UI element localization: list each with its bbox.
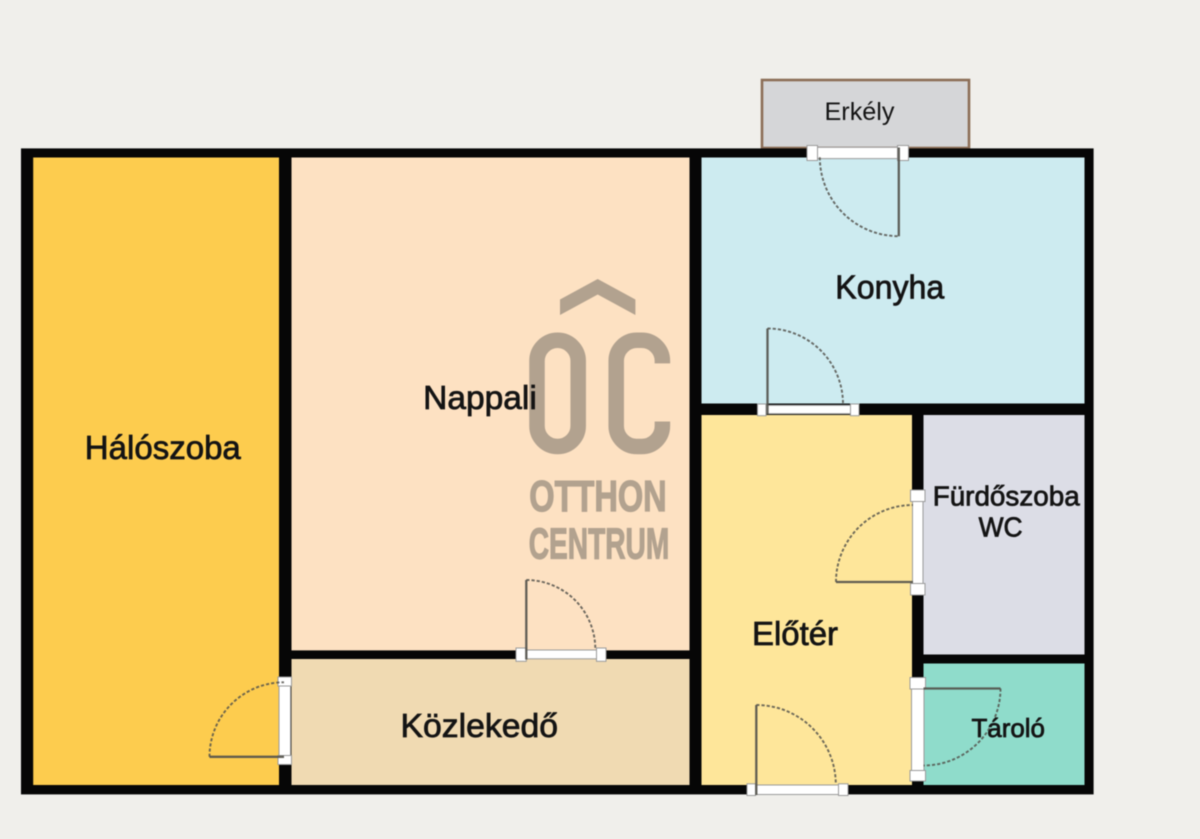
svg-text:Előtér: Előtér bbox=[752, 615, 838, 652]
svg-text:Konyha: Konyha bbox=[835, 269, 945, 306]
svg-text:WC: WC bbox=[979, 511, 1023, 542]
svg-text:CENTRUM: CENTRUM bbox=[529, 521, 670, 569]
svg-text:Közlekedő: Közlekedő bbox=[401, 707, 559, 744]
svg-text:Nappali: Nappali bbox=[423, 379, 537, 416]
svg-text:Fürdőszoba: Fürdőszoba bbox=[933, 480, 1080, 511]
svg-text:Hálószoba: Hálószoba bbox=[85, 429, 242, 466]
svg-text:Tároló: Tároló bbox=[971, 713, 1045, 743]
svg-text:OTTHON: OTTHON bbox=[529, 473, 666, 521]
svg-text:Erkély: Erkély bbox=[825, 98, 895, 126]
